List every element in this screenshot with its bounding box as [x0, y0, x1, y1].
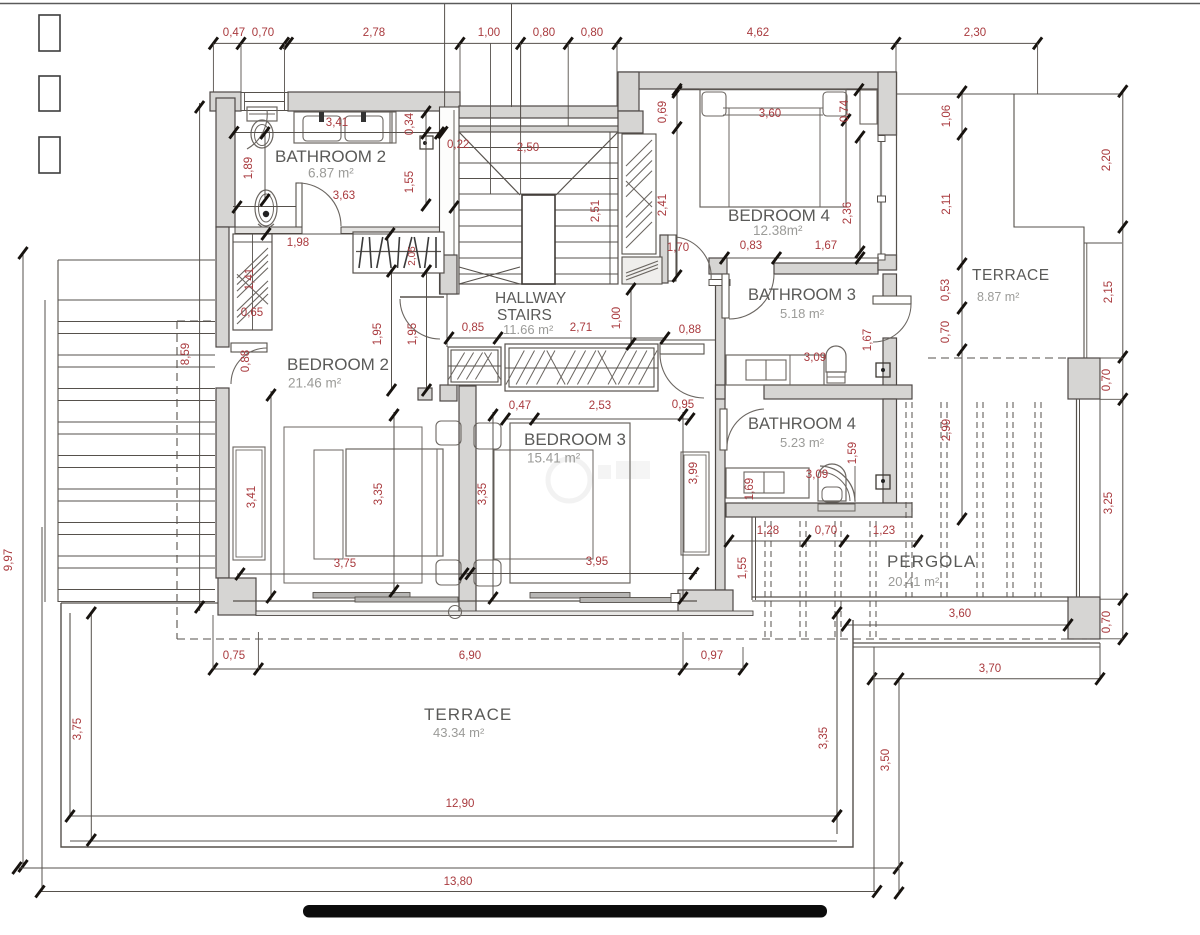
svg-text:1,55: 1,55: [404, 171, 416, 193]
svg-text:0,88: 0,88: [679, 324, 701, 336]
svg-text:1,95: 1,95: [407, 323, 419, 345]
svg-text:6,90: 6,90: [459, 650, 481, 662]
svg-text:2,71: 2,71: [570, 322, 592, 334]
svg-text:2,99: 2,99: [941, 419, 953, 441]
svg-text:12.38m²: 12.38m²: [753, 223, 803, 238]
svg-text:3,63: 3,63: [333, 190, 355, 202]
svg-text:0,70: 0,70: [1101, 611, 1113, 633]
svg-text:1,69: 1,69: [744, 478, 756, 500]
svg-text:2,50: 2,50: [517, 142, 539, 154]
svg-text:11.66 m²: 11.66 m²: [503, 322, 554, 337]
svg-text:2,15: 2,15: [1103, 281, 1115, 303]
svg-text:1,23: 1,23: [873, 525, 895, 537]
svg-text:PERGOLA: PERGOLA: [887, 552, 976, 571]
svg-text:3,35: 3,35: [373, 483, 385, 505]
svg-text:0,88: 0,88: [240, 350, 252, 372]
svg-text:0,74: 0,74: [839, 99, 851, 122]
svg-text:3,41: 3,41: [326, 117, 348, 129]
svg-text:3,41: 3,41: [246, 486, 258, 508]
svg-text:5.23 m²: 5.23 m²: [780, 435, 825, 450]
svg-text:TERRACE: TERRACE: [424, 705, 512, 724]
svg-text:3,99: 3,99: [688, 462, 700, 484]
svg-text:2,53: 2,53: [589, 400, 611, 412]
svg-text:HALLWAY: HALLWAY: [495, 290, 566, 307]
svg-text:1,00: 1,00: [611, 307, 623, 329]
svg-text:0,70: 0,70: [940, 321, 952, 343]
svg-text:3,60: 3,60: [949, 608, 971, 620]
svg-text:2,51: 2,51: [590, 200, 602, 222]
svg-text:6.87 m²: 6.87 m²: [308, 166, 354, 181]
svg-text:3,60: 3,60: [759, 108, 781, 120]
svg-text:3,75: 3,75: [334, 558, 356, 570]
svg-text:0,80: 0,80: [581, 27, 603, 39]
svg-text:3,35: 3,35: [477, 483, 489, 505]
svg-text:BEDROOM 3: BEDROOM 3: [524, 430, 626, 449]
svg-text:1,98: 1,98: [287, 237, 309, 249]
svg-text:0,83: 0,83: [740, 240, 762, 252]
svg-text:0,70: 0,70: [252, 27, 274, 39]
svg-text:1,95: 1,95: [372, 323, 384, 345]
svg-text:2,20: 2,20: [1101, 149, 1113, 171]
svg-text:3,95: 3,95: [586, 556, 608, 568]
svg-text:20.41 m²: 20.41 m²: [888, 574, 940, 589]
svg-text:0,69: 0,69: [657, 101, 669, 123]
svg-text:8.87 m²: 8.87 m²: [977, 290, 1019, 304]
svg-text:0,47: 0,47: [223, 27, 245, 39]
svg-text:4,62: 4,62: [747, 27, 769, 39]
svg-text:1,55: 1,55: [737, 557, 749, 579]
svg-text:0,70: 0,70: [1101, 369, 1113, 391]
svg-text:21.46 m²: 21.46 m²: [288, 376, 342, 391]
svg-text:3,09: 3,09: [804, 352, 826, 364]
svg-text:3,25: 3,25: [1103, 492, 1115, 514]
svg-text:0,75: 0,75: [223, 650, 245, 662]
svg-text:2,11: 2,11: [941, 193, 953, 215]
svg-text:3,75: 3,75: [72, 718, 84, 740]
svg-text:BATHROOM 4: BATHROOM 4: [748, 415, 856, 433]
svg-text:0,34: 0,34: [404, 112, 416, 135]
svg-text:3,09: 3,09: [806, 469, 828, 481]
svg-text:13,80: 13,80: [444, 876, 473, 888]
svg-text:0,95: 0,95: [672, 399, 694, 411]
svg-text:BEDROOM 2: BEDROOM 2: [287, 355, 389, 374]
svg-text:1,67: 1,67: [862, 329, 874, 351]
svg-text:BATHROOM 3: BATHROOM 3: [748, 286, 856, 304]
svg-text:1,89: 1,89: [243, 157, 255, 179]
svg-text:0,70: 0,70: [815, 525, 837, 537]
svg-text:1,67: 1,67: [815, 240, 837, 252]
svg-text:8,59: 8,59: [180, 343, 192, 365]
svg-text:12,90: 12,90: [446, 798, 475, 810]
svg-text:0,97: 0,97: [701, 650, 723, 662]
svg-text:2,36: 2,36: [842, 202, 854, 224]
svg-text:2,78: 2,78: [363, 27, 385, 39]
svg-text:3,50: 3,50: [880, 749, 892, 771]
svg-text:BATHROOM 2: BATHROOM 2: [275, 147, 386, 166]
svg-text:2,05: 2,05: [407, 246, 418, 266]
svg-text:1,06: 1,06: [941, 105, 953, 127]
svg-text:3,70: 3,70: [979, 663, 1001, 675]
svg-text:1,59: 1,59: [847, 442, 859, 464]
svg-text:2,41: 2,41: [657, 194, 669, 216]
svg-text:1,70: 1,70: [667, 242, 689, 254]
svg-text:9,97: 9,97: [3, 549, 15, 571]
svg-text:1,28: 1,28: [757, 525, 779, 537]
svg-text:0,85: 0,85: [462, 322, 484, 334]
svg-text:TERRACE: TERRACE: [972, 267, 1050, 284]
svg-text:5.18 m²: 5.18 m²: [780, 306, 825, 321]
svg-text:0,47: 0,47: [509, 400, 531, 412]
svg-text:2,30: 2,30: [964, 27, 986, 39]
svg-text:3,35: 3,35: [818, 727, 830, 749]
svg-text:1,41: 1,41: [244, 268, 256, 290]
svg-text:0,53: 0,53: [940, 279, 952, 301]
svg-text:0,22: 0,22: [447, 139, 469, 151]
svg-text:0,65: 0,65: [241, 307, 263, 319]
svg-text:1,00: 1,00: [478, 27, 500, 39]
svg-text:0,80: 0,80: [533, 27, 555, 39]
svg-text:43.34 m²: 43.34 m²: [433, 725, 485, 740]
